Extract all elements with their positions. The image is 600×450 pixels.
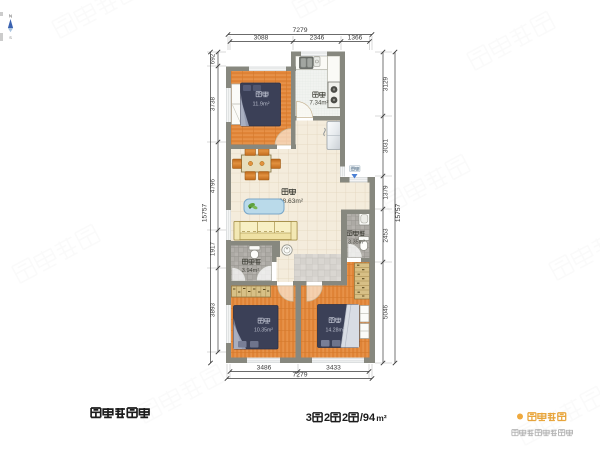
svg-text:m²: m² xyxy=(376,413,387,423)
svg-text:2453: 2453 xyxy=(383,228,390,243)
svg-text:2346: 2346 xyxy=(310,34,325,41)
svg-text:3: 3 xyxy=(306,412,312,424)
svg-text:7279: 7279 xyxy=(292,27,307,34)
svg-text:1366: 1366 xyxy=(348,34,363,41)
svg-text:S: S xyxy=(9,36,12,40)
svg-text:2: 2 xyxy=(324,412,330,424)
svg-text:7.34m²: 7.34m² xyxy=(309,100,328,107)
svg-text:3486: 3486 xyxy=(257,364,272,371)
svg-text:5046: 5046 xyxy=(383,304,390,319)
svg-text:N: N xyxy=(9,14,12,19)
svg-text:/94: /94 xyxy=(360,412,376,424)
svg-text:11.9m²: 11.9m² xyxy=(253,102,270,108)
svg-text:3088: 3088 xyxy=(254,34,269,41)
svg-text:3433: 3433 xyxy=(326,364,341,371)
svg-text:15757: 15757 xyxy=(202,204,209,223)
svg-text:10.35m²: 10.35m² xyxy=(254,328,273,334)
svg-text:7279: 7279 xyxy=(292,371,307,378)
svg-text:3129: 3129 xyxy=(383,76,390,91)
svg-text:2: 2 xyxy=(342,412,348,424)
svg-text:3.35m²: 3.35m² xyxy=(348,240,365,246)
svg-text:3.94m²: 3.94m² xyxy=(242,268,260,274)
svg-text:14.28m²: 14.28m² xyxy=(325,328,344,334)
svg-text:3031: 3031 xyxy=(383,138,390,153)
